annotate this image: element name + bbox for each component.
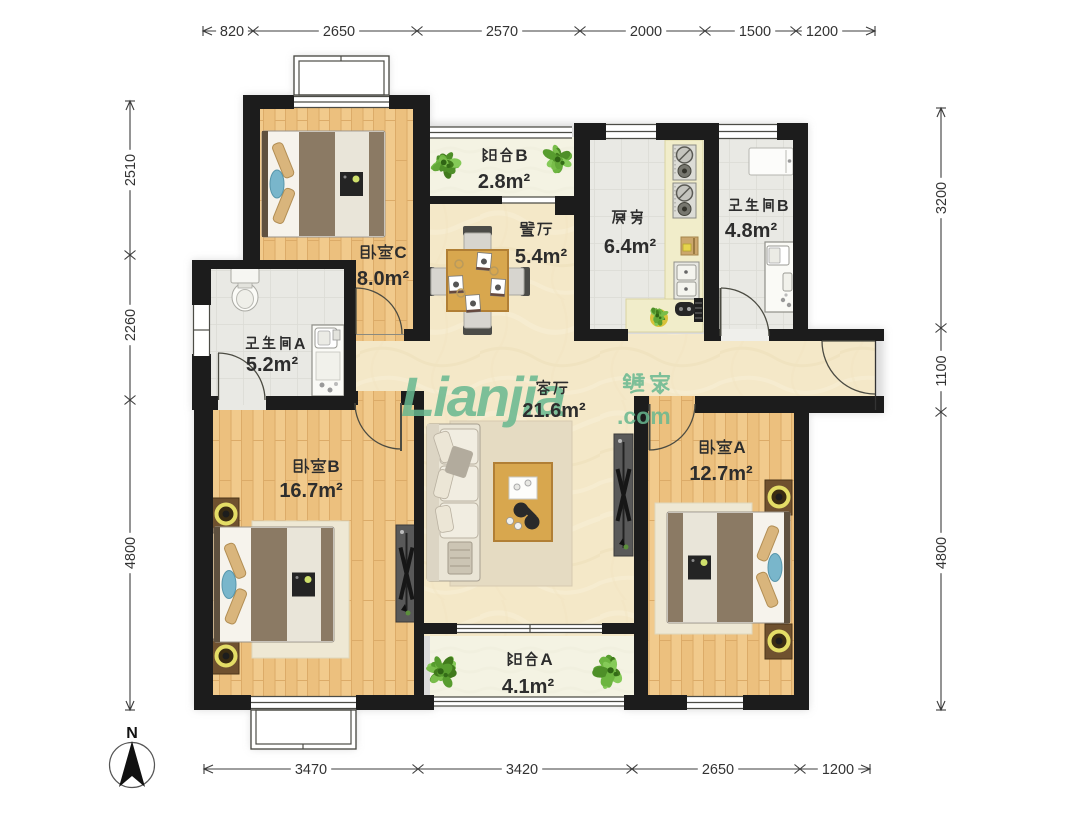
svg-text:4.1m²: 4.1m² <box>502 676 555 698</box>
svg-text:A: A <box>294 336 306 353</box>
svg-text:B: B <box>515 146 527 165</box>
svg-text:2570: 2570 <box>486 24 518 40</box>
svg-text:.com: .com <box>617 403 671 429</box>
svg-text:4.8m²: 4.8m² <box>725 220 778 242</box>
svg-text:8.0m²: 8.0m² <box>357 268 410 290</box>
svg-text:6.4m²: 6.4m² <box>604 236 657 258</box>
svg-text:B: B <box>777 198 789 215</box>
svg-text:2650: 2650 <box>702 762 734 778</box>
svg-text:1500: 1500 <box>739 24 771 40</box>
svg-text:3200: 3200 <box>934 182 950 214</box>
svg-text:4800: 4800 <box>934 537 950 569</box>
svg-text:21.6m²: 21.6m² <box>522 400 586 422</box>
svg-text:1200: 1200 <box>822 762 854 778</box>
svg-text:820: 820 <box>220 24 244 40</box>
svg-text:N: N <box>126 725 138 742</box>
svg-text:B: B <box>327 457 339 476</box>
svg-text:5.2m²: 5.2m² <box>246 354 299 376</box>
svg-text:12.7m²: 12.7m² <box>689 463 753 485</box>
svg-text:2.8m²: 2.8m² <box>478 171 531 193</box>
svg-text:1100: 1100 <box>934 355 950 386</box>
svg-text:A: A <box>733 438 745 457</box>
svg-text:C: C <box>394 243 406 262</box>
svg-text:A: A <box>540 650 552 669</box>
svg-text:1200: 1200 <box>806 24 838 40</box>
svg-text:2510: 2510 <box>123 154 139 186</box>
svg-text:3420: 3420 <box>506 762 538 778</box>
svg-text:4800: 4800 <box>123 537 139 569</box>
svg-text:5.4m²: 5.4m² <box>515 246 568 268</box>
svg-text:2260: 2260 <box>123 309 139 341</box>
svg-text:3470: 3470 <box>295 762 327 778</box>
svg-text:2650: 2650 <box>323 24 355 40</box>
svg-text:2000: 2000 <box>630 24 662 40</box>
svg-text:16.7m²: 16.7m² <box>279 480 343 502</box>
